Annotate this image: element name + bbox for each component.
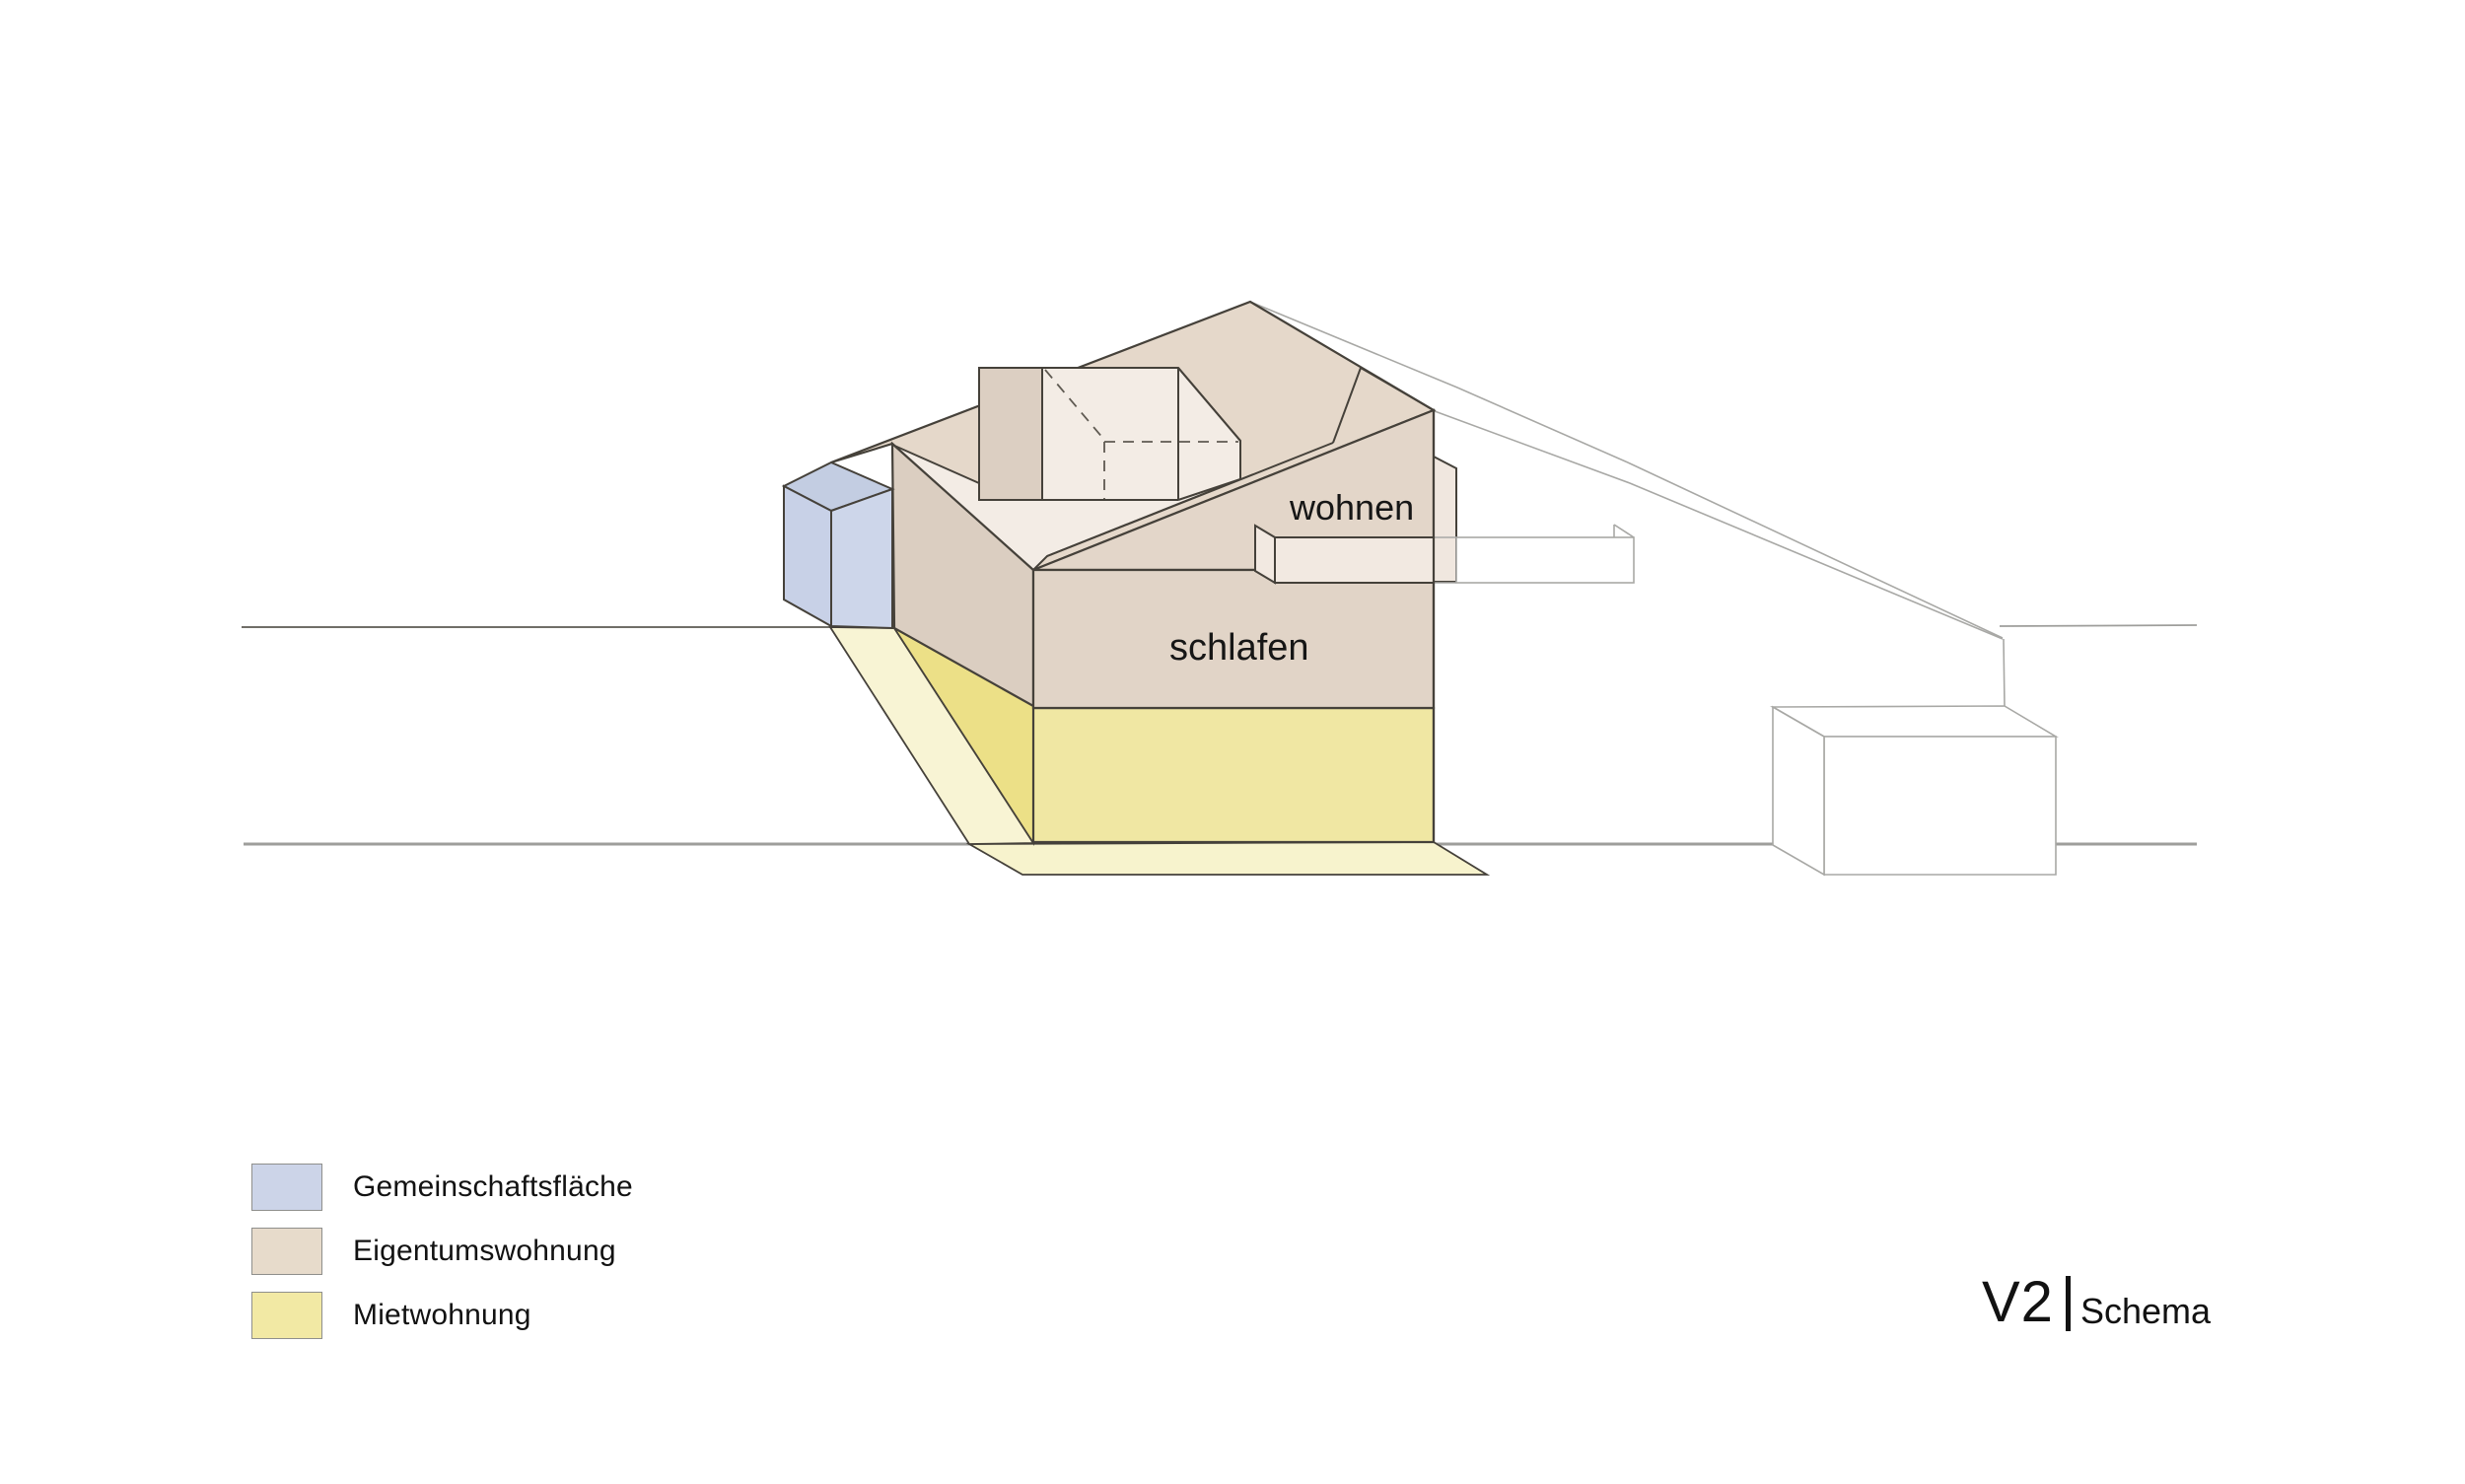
cube-left-face <box>1773 707 1824 875</box>
title-separator-bar <box>2066 1276 2071 1331</box>
community-volume <box>784 462 892 628</box>
balcony-extension-rect <box>1456 537 1634 583</box>
legend-swatch-ownership <box>251 1228 322 1275</box>
title-block: V2 Schema <box>1982 1274 2211 1331</box>
courtyard-tower-wall <box>979 368 1042 500</box>
ground-line-upper-right <box>2000 625 2197 626</box>
balcony-extension-notch-slant <box>1614 525 1634 537</box>
title-name: Schema <box>2080 1291 2211 1331</box>
community-left-face <box>784 486 831 626</box>
legend-item-community: Gemeinschaftsfläche <box>251 1164 633 1211</box>
legend-label-community: Gemeinschaftsfläche <box>353 1170 633 1204</box>
balcony-side-wall <box>1434 457 1456 582</box>
roof-extension-drop-line <box>2004 639 2005 706</box>
legend-item-rental: Mietwohnung <box>251 1292 531 1339</box>
community-right-face <box>831 489 892 628</box>
label-sleeping: schlafen <box>1169 627 1309 669</box>
neighbour-building-cube <box>1773 706 2056 875</box>
balcony-front-face <box>1275 537 1434 583</box>
legend-swatch-rental <box>251 1292 322 1339</box>
rental-ground-plane <box>969 842 1487 875</box>
legend-label-ownership: Eigentumswohnung <box>353 1235 616 1268</box>
label-living: wohnen <box>1289 487 1414 528</box>
balcony-extension-outline <box>1434 525 1634 583</box>
rental-floor-front-face <box>1033 708 1434 842</box>
title-version: V2 <box>1982 1274 2054 1331</box>
roof-extension-line-lower <box>1435 411 2003 639</box>
schema-canvas: wohnen schlafen Gemeinschaftsfläche Eige… <box>0 0 2465 1479</box>
legend-label-rental: Mietwohnung <box>353 1299 531 1332</box>
legend-swatch-community <box>251 1164 322 1211</box>
legend-item-ownership: Eigentumswohnung <box>251 1228 616 1275</box>
cube-front-face <box>1824 737 2056 875</box>
